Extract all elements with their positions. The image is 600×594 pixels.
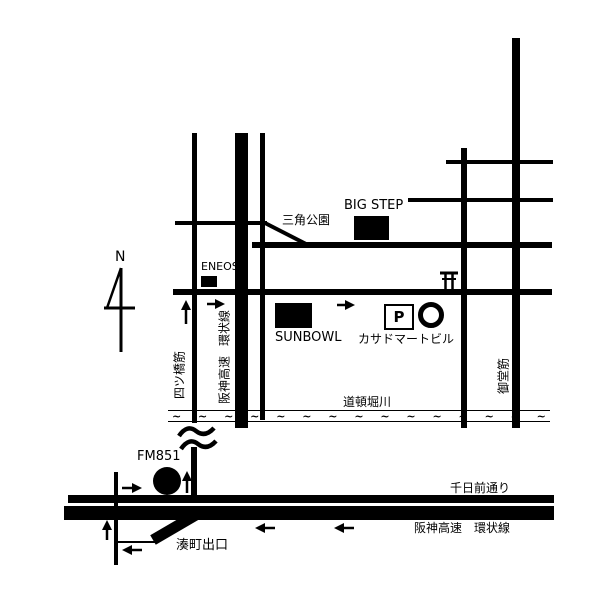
arrow-left-icon	[255, 523, 275, 533]
midosuji-label: 御堂筋	[495, 358, 512, 394]
hanshin-expressway-loop-label: 阪神高速 環状線	[414, 519, 510, 536]
triangle-park-label: 三角公園	[282, 211, 330, 228]
eneos-label: ENEOS	[201, 260, 239, 273]
arrow-up-icon	[182, 471, 192, 493]
north-arrow-icon	[104, 268, 135, 352]
sunbowl-label: SUNBOWL	[275, 330, 342, 345]
road-break-icon	[179, 428, 214, 436]
torii-icon	[440, 273, 458, 289]
arrow-right-icon	[207, 299, 225, 309]
yotsubashi-suji-label: 四ツ橋筋	[171, 351, 188, 399]
road-break-icon	[181, 441, 216, 449]
kasado-mart-building-label: カサドマートビル	[358, 330, 454, 347]
arrow-up-icon	[102, 520, 112, 540]
map-symbols-layer	[0, 0, 600, 594]
hanshin-expressway-label: 阪神高速	[216, 356, 233, 404]
north-label: N	[115, 249, 125, 265]
fm851-label: FM851	[137, 449, 181, 464]
access-map: ~~~~~~~~~~~~~~~ P	[0, 0, 600, 594]
dotonbori-river-label: 道頓堀川	[343, 393, 391, 410]
big-step-label: BIG STEP	[344, 198, 403, 213]
arrow-left-icon	[122, 545, 142, 555]
arrow-left-icon	[334, 523, 354, 533]
arrow-right-icon	[122, 483, 142, 493]
loop-line-label: 環状線	[216, 310, 233, 346]
arrow-right-icon	[337, 300, 355, 310]
arrow-up-icon	[181, 300, 191, 324]
sennichimae-dori-label: 千日前通り	[450, 479, 510, 496]
minatomachi-exit-label: 湊町出口	[176, 534, 228, 553]
